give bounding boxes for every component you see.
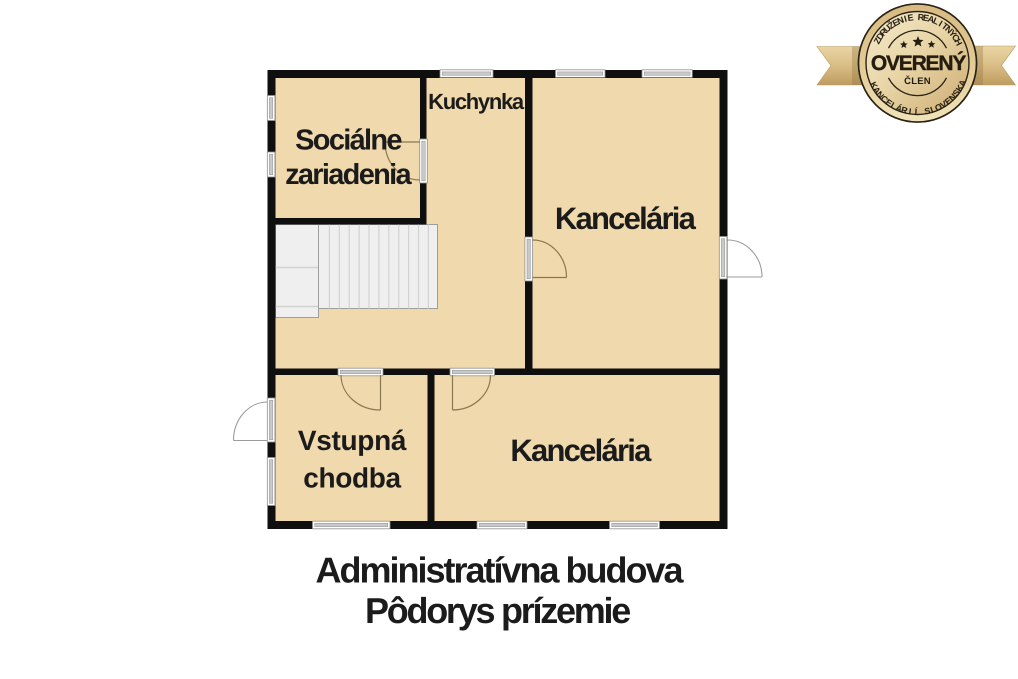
svg-text:Kancelária: Kancelária	[510, 433, 652, 468]
svg-text:zariadenia: zariadenia	[285, 159, 412, 191]
svg-text:Kancelária: Kancelária	[555, 201, 697, 236]
svg-text:Administratívna budova: Administratívna budova	[315, 550, 684, 591]
svg-text:chodba: chodba	[303, 463, 401, 494]
svg-text:Pôdorys prízemie: Pôdorys prízemie	[365, 590, 630, 631]
svg-text:ČLEN: ČLEN	[904, 75, 931, 87]
svg-text:Vstupná: Vstupná	[298, 425, 407, 456]
svg-text:Kuchynka: Kuchynka	[428, 89, 525, 114]
svg-text:OVERENÝ: OVERENÝ	[871, 51, 966, 75]
svg-text:Sociálne: Sociálne	[295, 125, 402, 157]
